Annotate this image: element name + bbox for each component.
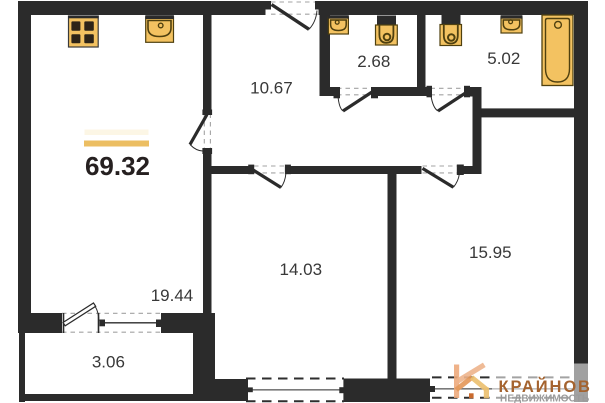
svg-text:10.67: 10.67 (250, 79, 293, 98)
svg-text:НЕДВИЖИМОСТЬ: НЕДВИЖИМОСТЬ (500, 393, 589, 403)
svg-text:69.32: 69.32 (85, 151, 150, 181)
svg-text:2.68: 2.68 (357, 52, 390, 71)
svg-text:15.95: 15.95 (469, 243, 512, 262)
svg-text:19.44: 19.44 (151, 286, 194, 305)
svg-text:14.03: 14.03 (280, 260, 323, 279)
svg-text:5.02: 5.02 (487, 49, 520, 68)
svg-text:3.06: 3.06 (92, 353, 125, 372)
